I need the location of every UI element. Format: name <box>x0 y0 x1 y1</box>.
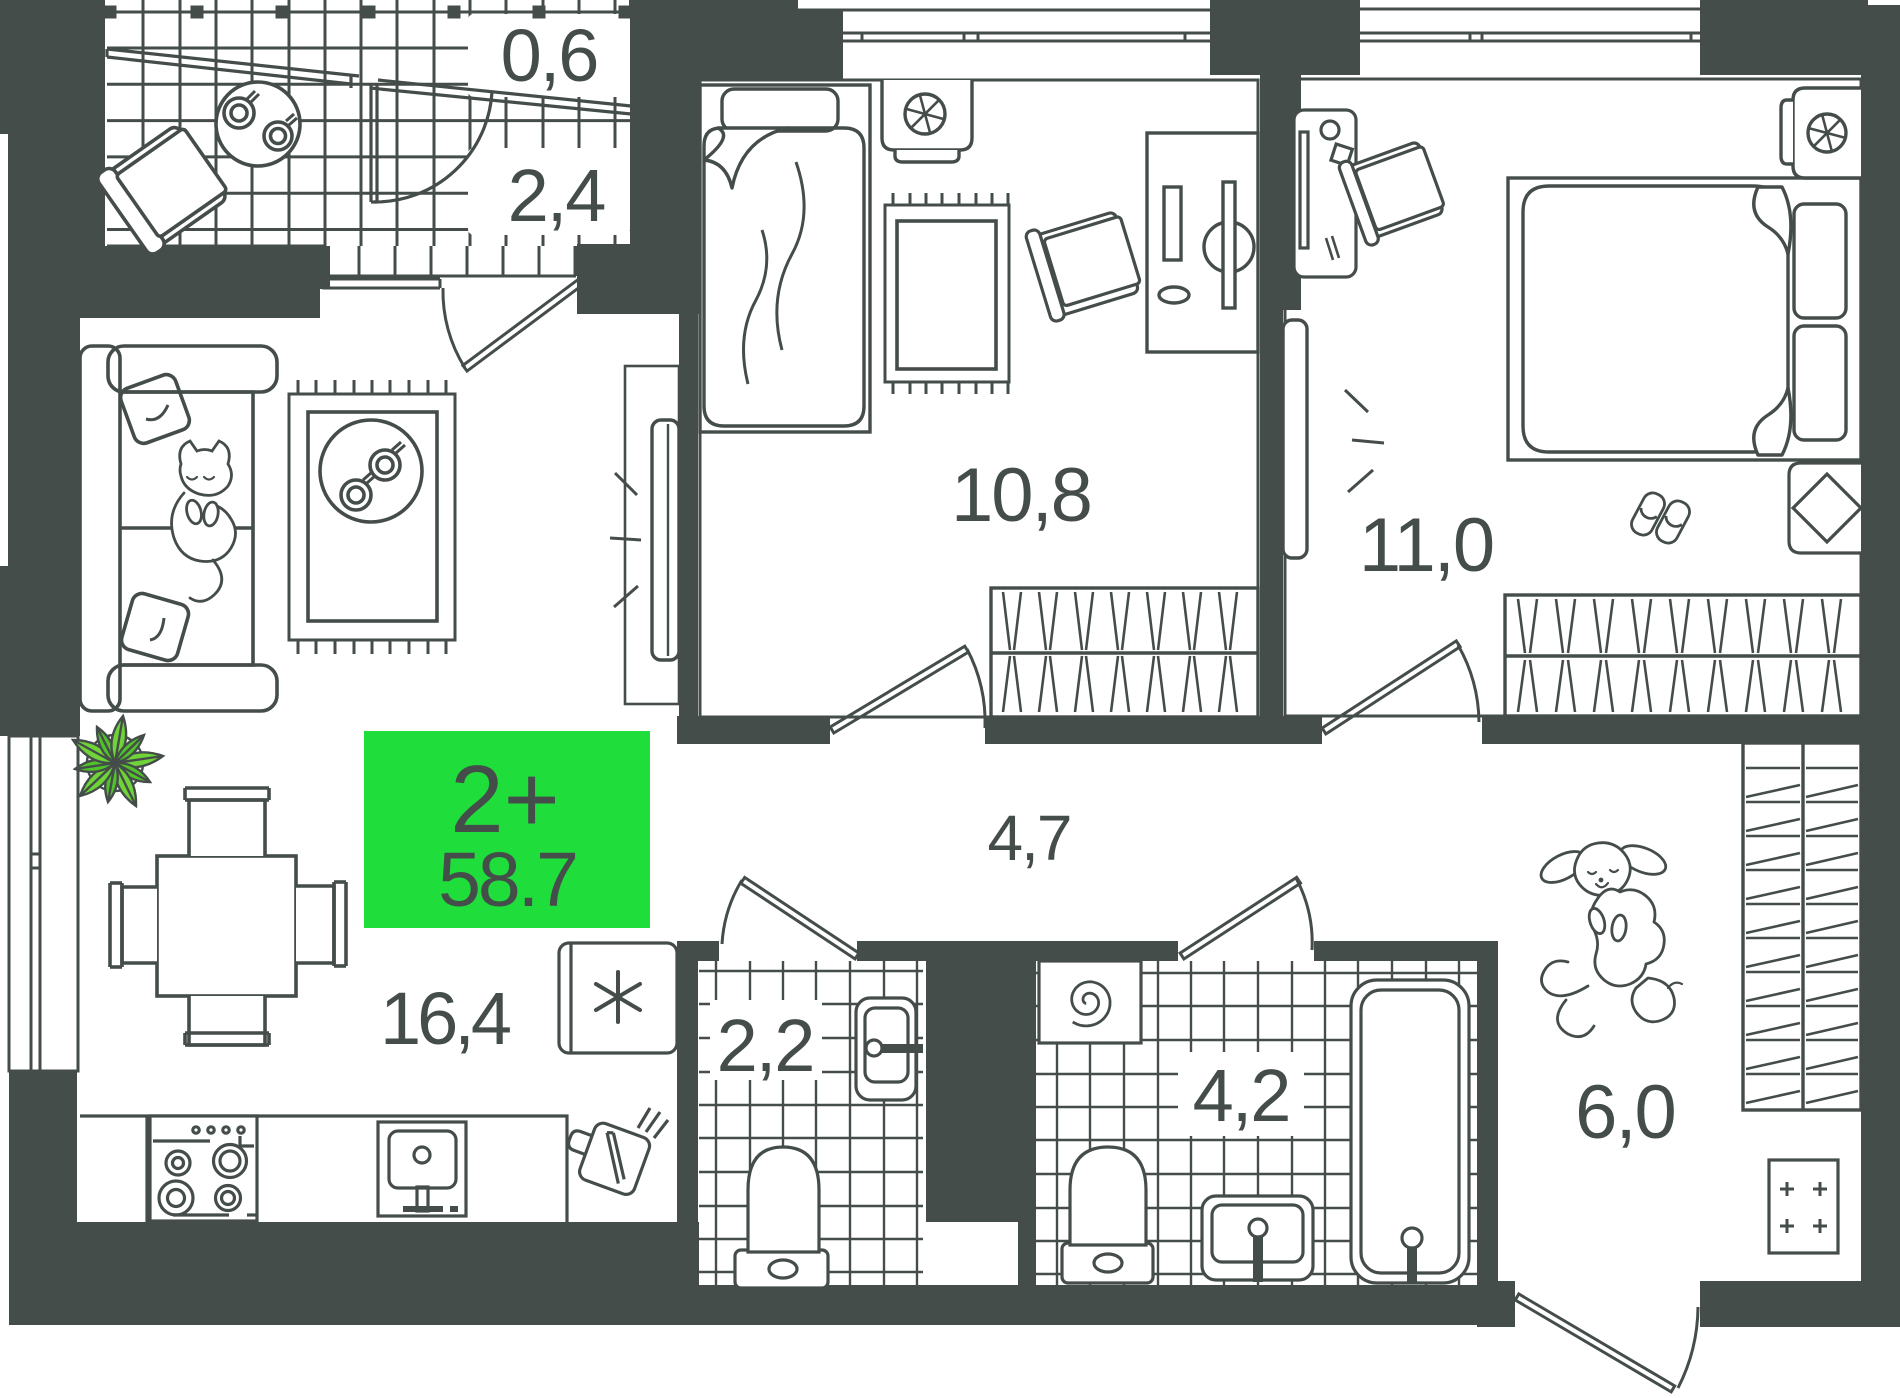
svg-text:4,7: 4,7 <box>988 802 1071 874</box>
svg-text:10,8: 10,8 <box>951 453 1091 538</box>
svg-text:16,4: 16,4 <box>380 977 510 1060</box>
svg-text:11,0: 11,0 <box>1359 503 1493 588</box>
svg-text:2,2: 2,2 <box>717 1004 814 1087</box>
svg-text:6,0: 6,0 <box>1575 1070 1675 1155</box>
svg-text:4,2: 4,2 <box>1193 1054 1290 1137</box>
svg-text:58.7: 58.7 <box>438 837 576 923</box>
svg-text:0,6: 0,6 <box>501 14 598 97</box>
svg-text:2,4: 2,4 <box>508 154 605 237</box>
